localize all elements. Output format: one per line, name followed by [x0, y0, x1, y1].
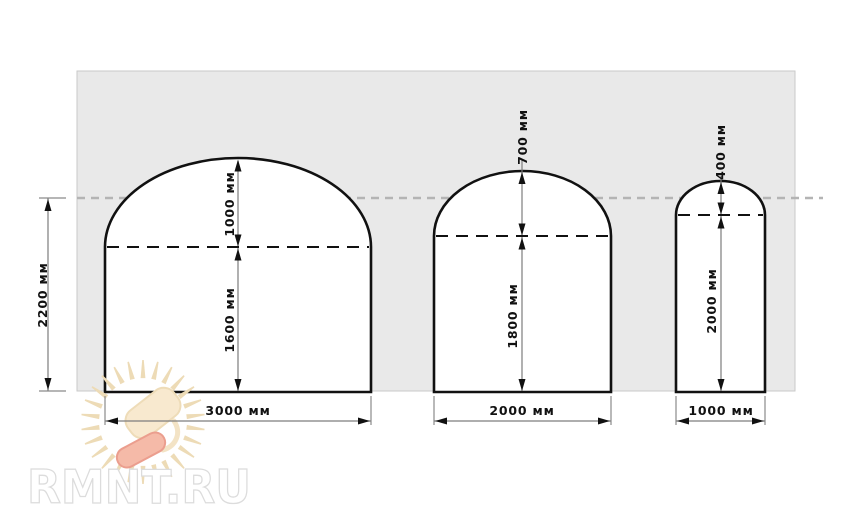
wall-height-label: 1600 мм — [222, 287, 237, 352]
sun-ray — [85, 435, 103, 444]
width-label: 3000 мм — [205, 403, 270, 418]
width-label: 2000 мм — [489, 403, 554, 418]
rise-label: 1000 мм — [222, 171, 237, 236]
rise-label: 700 мм — [515, 109, 530, 165]
arrow-left-icon — [435, 418, 447, 425]
overall-height-label: 2200 мм — [35, 262, 50, 327]
arrow-left-icon — [677, 418, 689, 425]
sun-ray — [81, 414, 99, 419]
arrow-down-icon — [45, 378, 52, 390]
arrow-right-icon — [752, 418, 764, 425]
sun-ray — [81, 425, 99, 430]
arch-dimension-diagram: 2200 мм 1000 мм 1600 мм 700 мм 1800 мм 4… — [0, 0, 850, 529]
sun-ray — [92, 445, 109, 458]
arrow-up-icon — [45, 199, 52, 211]
sun-ray — [85, 399, 103, 408]
sun-ray — [178, 445, 195, 458]
width-label: 1000 мм — [688, 403, 753, 418]
overall-height-dimension: 2200 мм — [35, 198, 66, 391]
medium-arch-width-dimension: 2000 мм — [434, 396, 611, 425]
wall-height-label: 1800 мм — [505, 283, 520, 348]
sun-ray — [186, 425, 204, 430]
sun-ray — [183, 435, 201, 444]
arrow-right-icon — [598, 418, 610, 425]
sun-ray — [186, 414, 204, 419]
arrow-left-icon — [106, 418, 118, 425]
arrow-right-icon — [358, 418, 370, 425]
small-arch-width-dimension: 1000 мм — [676, 396, 765, 425]
sun-ray — [183, 399, 201, 408]
wall-height-label: 2000 мм — [704, 268, 719, 333]
watermark-site-text: RMNT.RU — [27, 460, 251, 514]
rise-label: 400 мм — [713, 124, 728, 180]
